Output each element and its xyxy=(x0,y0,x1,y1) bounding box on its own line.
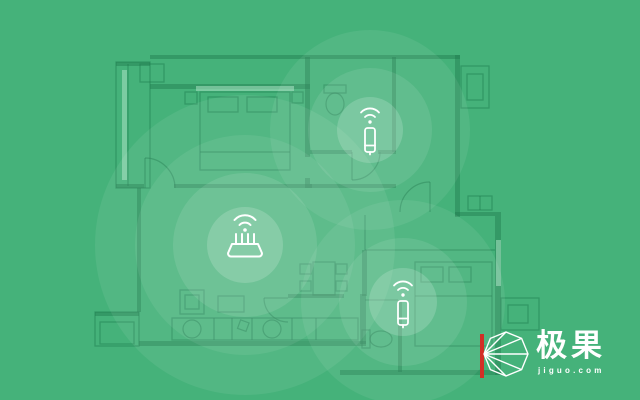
jiguo-logo: 极果 jiguo.com xyxy=(480,326,640,386)
jiguo-polygon-icon xyxy=(480,326,532,382)
wifi-extender-icon xyxy=(361,108,379,154)
logo-brand-text: 极果 xyxy=(536,326,636,366)
wifi-extender-icon xyxy=(394,281,412,327)
wifi-router-icon xyxy=(228,215,262,256)
logo-domain-text: jiguo.com xyxy=(538,366,638,375)
wifi-coverage-illustration: 极果 jiguo.com xyxy=(0,0,640,400)
